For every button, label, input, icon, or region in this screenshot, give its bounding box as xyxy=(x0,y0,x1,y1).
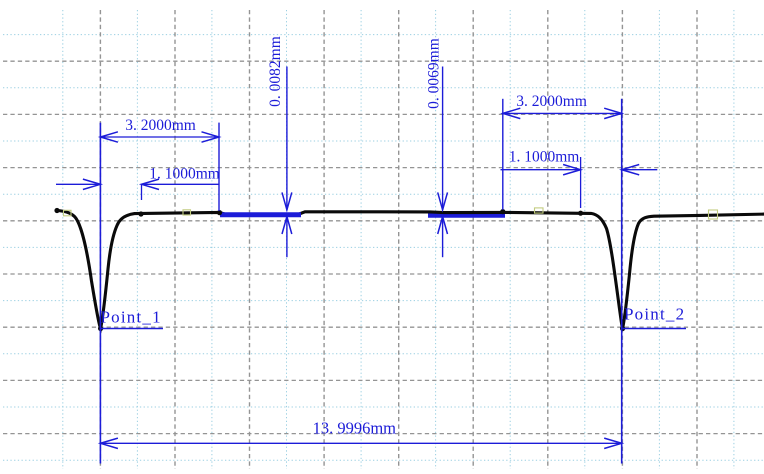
svg-text:Point_1: Point_1 xyxy=(101,308,162,327)
svg-text:0. 0082mm: 0. 0082mm xyxy=(267,36,284,107)
svg-text:0. 0069mm: 0. 0069mm xyxy=(426,38,443,109)
svg-text:3. 2000mm: 3. 2000mm xyxy=(516,93,587,110)
svg-text:Point_2: Point_2 xyxy=(624,305,685,324)
svg-text:1. 1000mm: 1. 1000mm xyxy=(509,149,580,166)
svg-text:3. 2000mm: 3. 2000mm xyxy=(125,117,196,134)
svg-text:13. 9996mm: 13. 9996mm xyxy=(313,419,397,438)
svg-text:1. 1000mm: 1. 1000mm xyxy=(149,166,220,183)
